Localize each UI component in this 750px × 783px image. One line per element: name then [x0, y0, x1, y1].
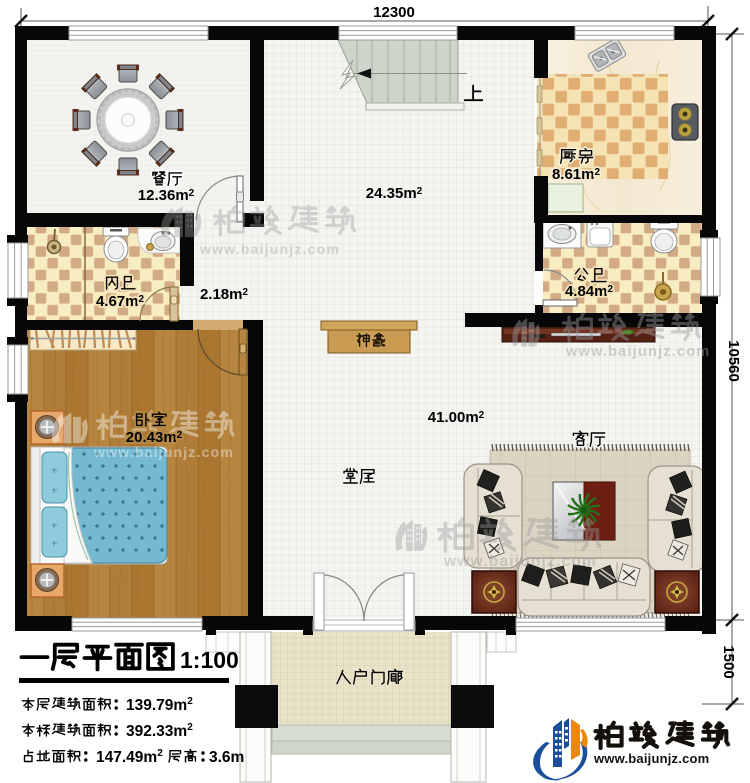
svg-text:10560: 10560	[725, 340, 742, 382]
svg-text:3.6m: 3.6m	[209, 749, 244, 766]
svg-text:2.18m2: 2.18m2	[200, 286, 249, 303]
svg-text:12.36m2: 12.36m2	[138, 187, 195, 204]
svg-text:139.79m2: 139.79m2	[126, 696, 193, 714]
svg-text:1:100: 1:100	[180, 647, 239, 673]
svg-text:147.49m2: 147.49m2	[96, 748, 163, 766]
svg-text:4.67m2: 4.67m2	[96, 293, 145, 310]
svg-text:392.33m2: 392.33m2	[126, 722, 193, 740]
svg-text:1500: 1500	[720, 645, 737, 678]
svg-text:www.baijunjz.com: www.baijunjz.com	[93, 444, 234, 460]
svg-text:www.baijunjz.com: www.baijunjz.com	[199, 241, 340, 257]
svg-text:www.baijunjz.com: www.baijunjz.com	[593, 751, 709, 766]
svg-text:24.35m2: 24.35m2	[366, 185, 423, 202]
svg-text:4.84m2: 4.84m2	[565, 283, 614, 300]
svg-text:20.43m2: 20.43m2	[126, 429, 183, 446]
svg-text:12300: 12300	[373, 4, 415, 21]
svg-text:8.61m2: 8.61m2	[552, 166, 601, 183]
svg-text:www.baijunjz.com: www.baijunjz.com	[565, 344, 710, 360]
svg-text:41.00m2: 41.00m2	[428, 409, 485, 426]
svg-text:www.baijunjz.com: www.baijunjz.com	[443, 553, 597, 570]
